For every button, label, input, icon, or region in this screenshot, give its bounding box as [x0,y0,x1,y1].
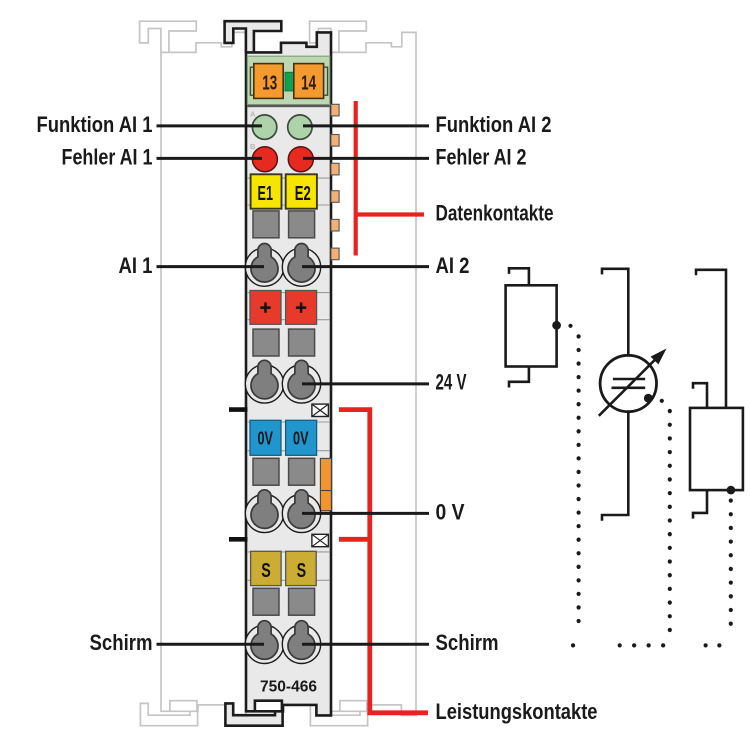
svg-text:E1: E1 [258,183,274,205]
svg-text:AI 1: AI 1 [119,253,153,278]
svg-text:E2: E2 [295,183,311,205]
svg-text:Leistungskontakte: Leistungskontakte [436,699,598,724]
svg-text:Schirm: Schirm [436,630,499,655]
svg-text:Fehler AI 1: Fehler AI 1 [62,144,153,169]
svg-text:24 V: 24 V [436,370,467,395]
svg-text:S: S [297,560,307,582]
svg-text:AI 2: AI 2 [436,253,470,278]
svg-text:Funktion AI 1: Funktion AI 1 [37,112,153,137]
svg-text:0V: 0V [257,428,273,448]
svg-text:Funktion AI 2: Funktion AI 2 [436,112,552,137]
svg-text:A: A [250,109,256,118]
svg-text:750-466: 750-466 [260,678,317,695]
svg-text:0 V: 0 V [436,499,465,524]
svg-text:14: 14 [301,72,317,94]
svg-text:Schirm: Schirm [90,630,153,655]
svg-text:Datenkontakte: Datenkontakte [436,201,554,226]
svg-text:13: 13 [262,72,277,94]
svg-text:S: S [261,560,271,582]
svg-text:Fehler AI 2: Fehler AI 2 [436,144,527,169]
svg-text:0V: 0V [293,428,309,448]
svg-text:B: B [250,142,256,151]
